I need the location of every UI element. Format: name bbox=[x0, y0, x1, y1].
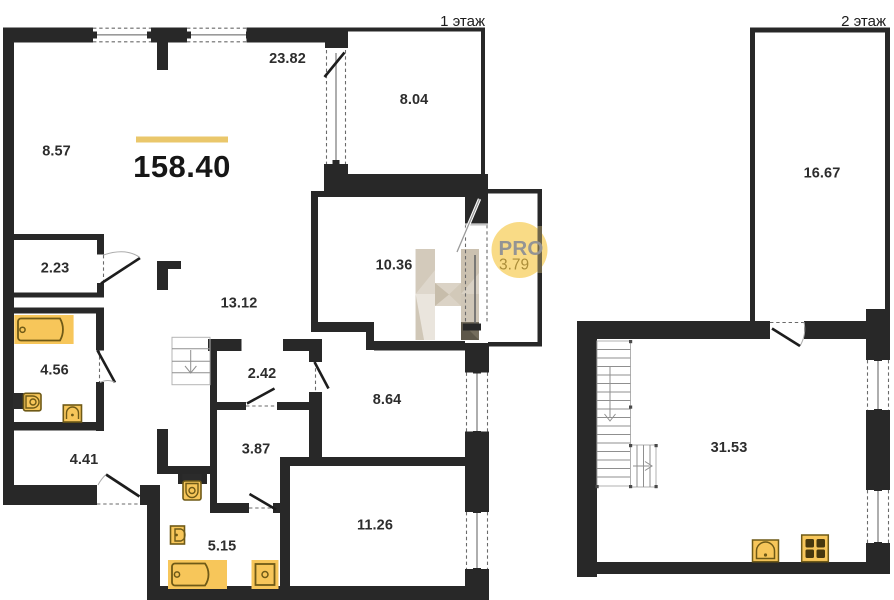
svg-text:2.23: 2.23 bbox=[41, 261, 70, 277]
svg-text:2 этаж: 2 этаж bbox=[841, 13, 886, 30]
svg-text:8.04: 8.04 bbox=[400, 92, 429, 108]
svg-text:1 этаж: 1 этаж bbox=[440, 13, 485, 30]
svg-text:31.53: 31.53 bbox=[711, 440, 748, 456]
svg-text:13.12: 13.12 bbox=[221, 296, 258, 312]
svg-text:10.36: 10.36 bbox=[376, 258, 413, 274]
svg-text:23.82: 23.82 bbox=[269, 51, 306, 67]
svg-text:11.26: 11.26 bbox=[357, 518, 393, 534]
svg-text:8.64: 8.64 bbox=[373, 392, 402, 408]
svg-text:4.41: 4.41 bbox=[70, 452, 99, 468]
svg-text:4.56: 4.56 bbox=[40, 363, 69, 379]
svg-text:16.67: 16.67 bbox=[804, 166, 841, 182]
svg-text:158.40: 158.40 bbox=[133, 149, 231, 184]
svg-text:5.15: 5.15 bbox=[208, 539, 237, 555]
svg-text:2.42: 2.42 bbox=[248, 366, 277, 382]
svg-text:3.87: 3.87 bbox=[242, 442, 271, 458]
svg-text:8.57: 8.57 bbox=[42, 144, 71, 160]
svg-text:3.79: 3.79 bbox=[499, 256, 529, 273]
